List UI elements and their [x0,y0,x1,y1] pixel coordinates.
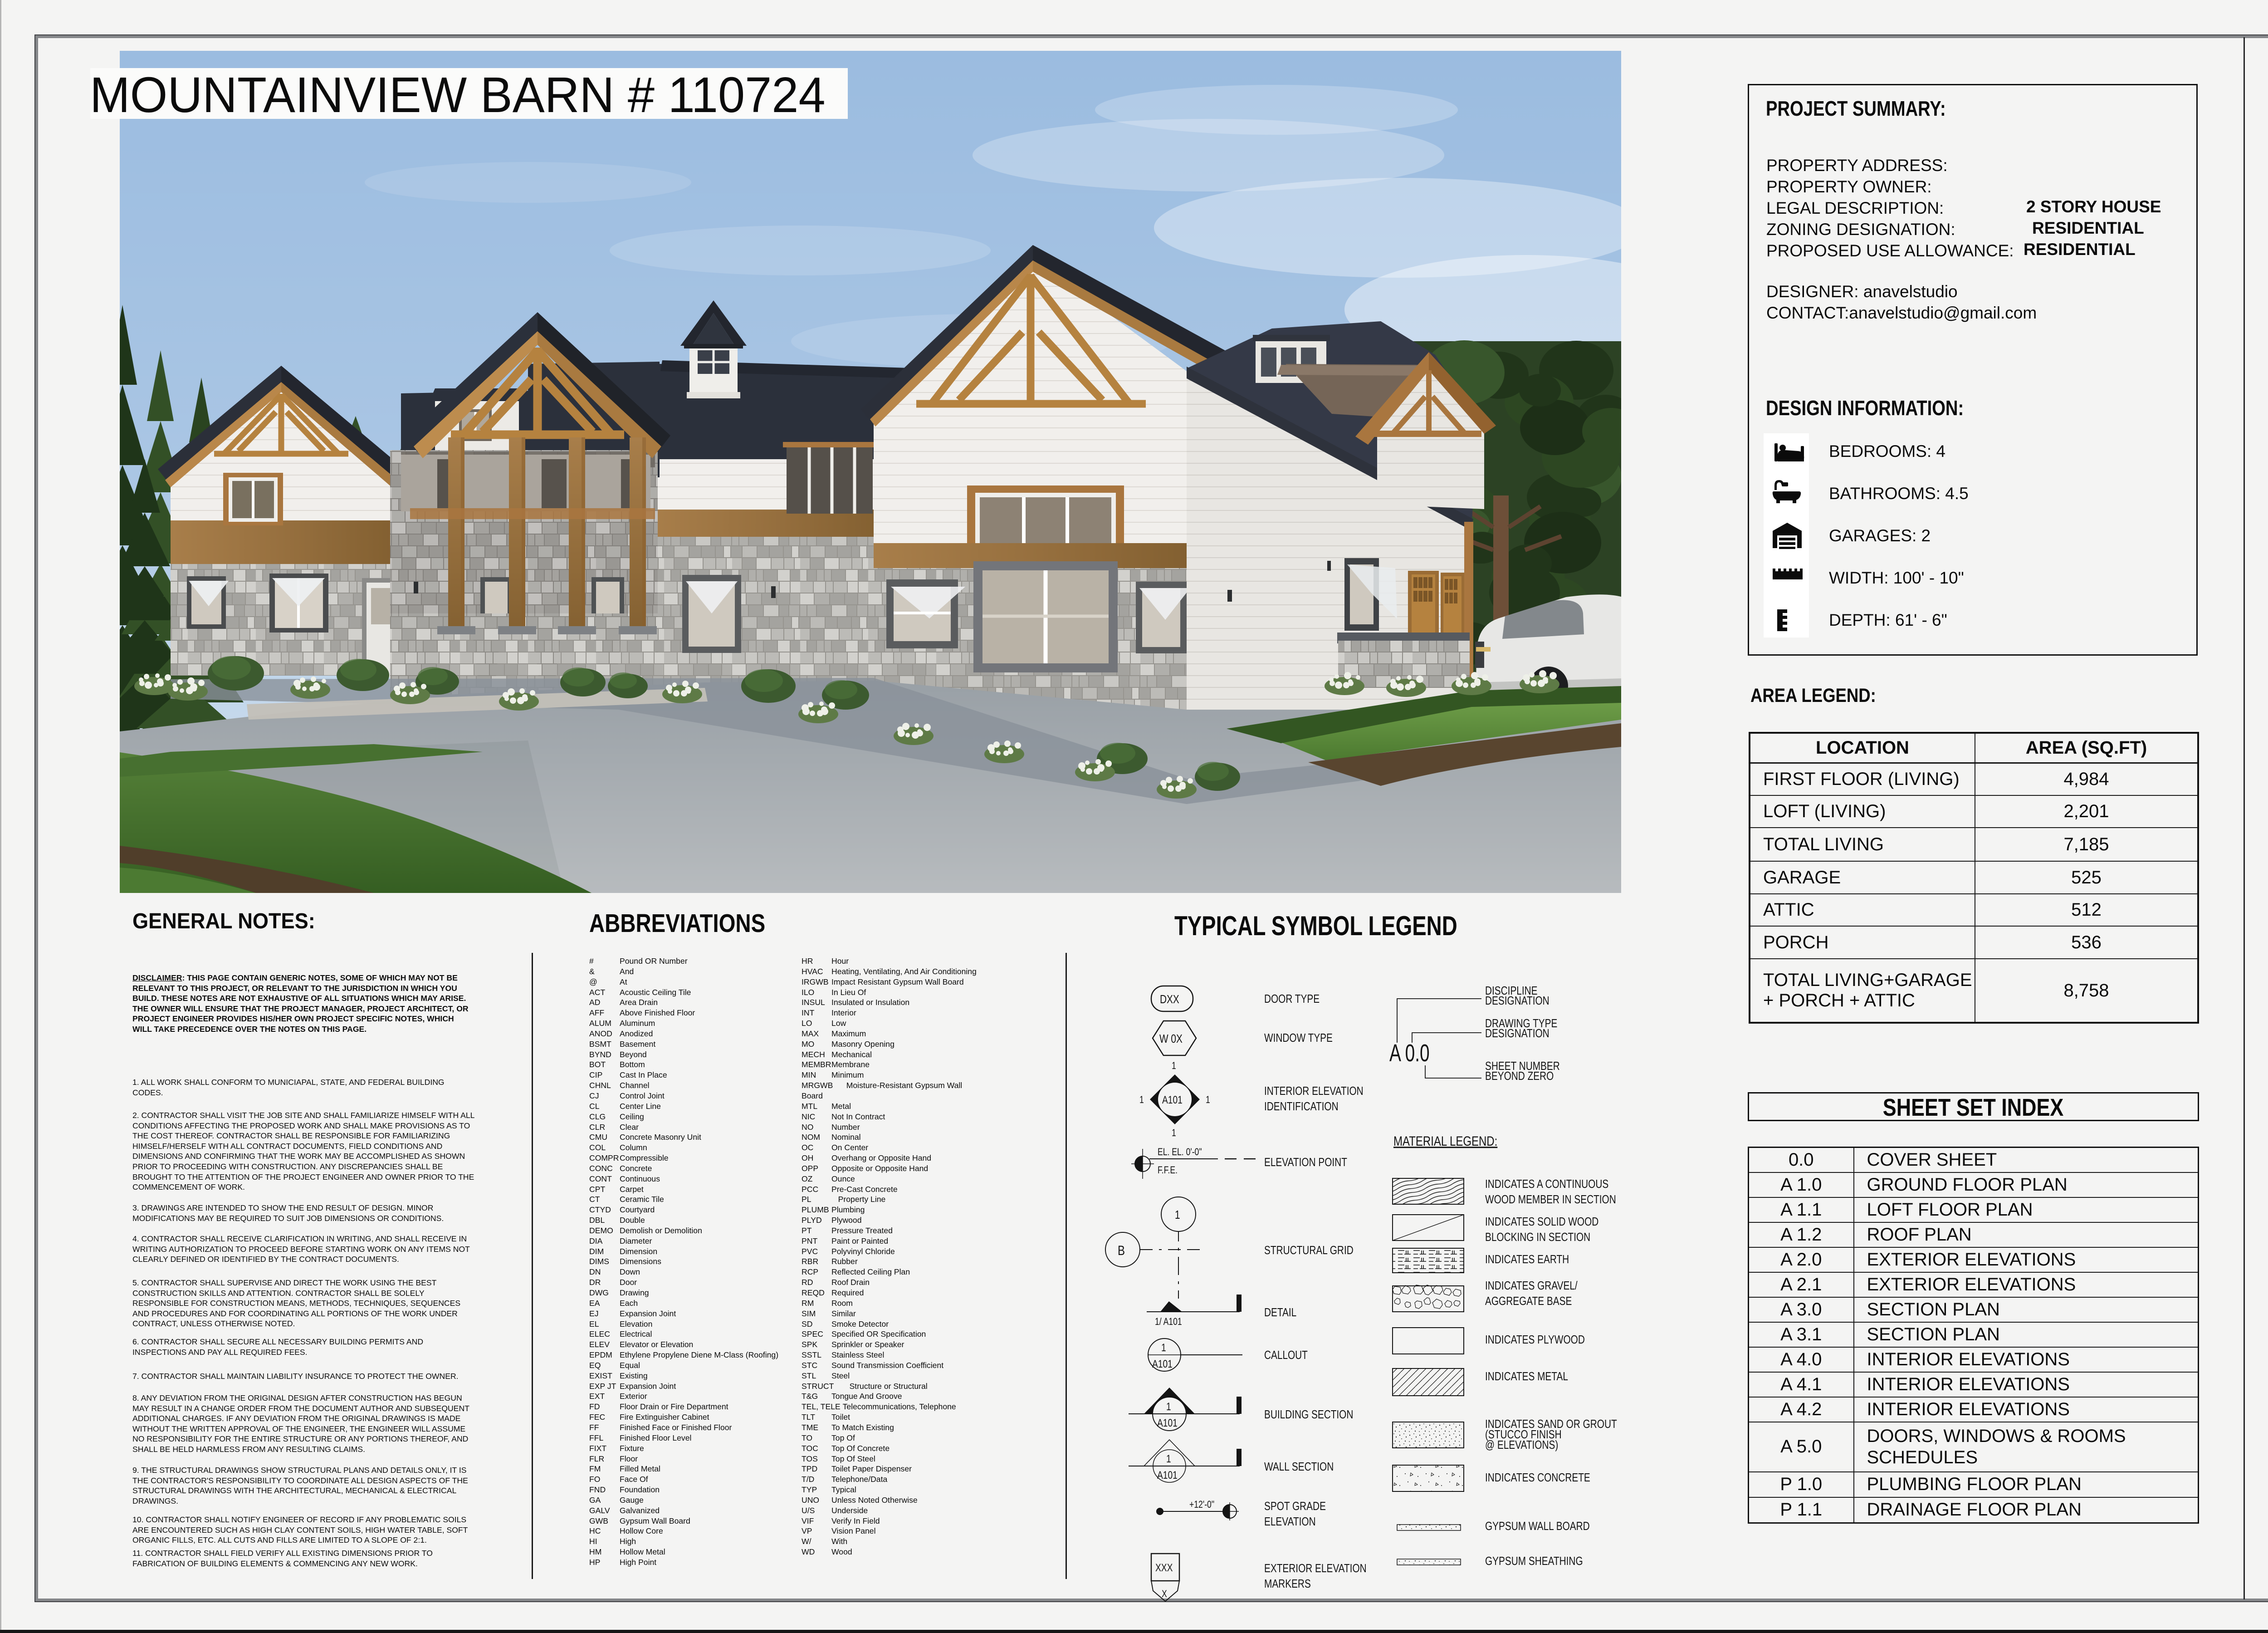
svg-text:1: 1 [1172,1128,1176,1138]
svg-text:1/ A101: 1/ A101 [1155,1316,1182,1327]
svg-text:1: 1 [1175,1208,1180,1221]
svg-text:AGGREGATE BASE: AGGREGATE BASE [1485,1295,1572,1308]
svg-text:F.F.E.: F.F.E. [1158,1165,1178,1176]
svg-text:XXX: XXX [1155,1561,1173,1574]
svg-text:W 0X: W 0X [1159,1032,1183,1045]
svg-text:DOOR TYPE: DOOR TYPE [1264,992,1320,1005]
svg-text:INDICATES METAL: INDICATES METAL [1485,1370,1568,1383]
svg-text:SPOT GRADE: SPOT GRADE [1264,1500,1326,1513]
svg-text:1: 1 [1172,1060,1176,1071]
svg-text:EXTERIOR ELEVATION: EXTERIOR ELEVATION [1264,1562,1367,1575]
svg-text:WOOD MEMBER IN SECTION: WOOD MEMBER IN SECTION [1485,1193,1616,1206]
svg-text:A101: A101 [1162,1094,1183,1106]
svg-text:INTERIOR ELEVATION: INTERIOR ELEVATION [1264,1084,1364,1098]
svg-text:MARKERS: MARKERS [1264,1577,1311,1590]
svg-text:A 0.0: A 0.0 [1389,1039,1430,1067]
svg-text:@ ELEVATIONS): @ ELEVATIONS) [1485,1438,1558,1452]
svg-text:1: 1 [1206,1094,1210,1105]
svg-text:INDICATES GRAVEL/: INDICATES GRAVEL/ [1485,1279,1578,1292]
svg-text:GYPSUM SHEATHING: GYPSUM SHEATHING [1485,1555,1583,1568]
svg-text:INDICATES A CONTINUOUS: INDICATES A CONTINUOUS [1485,1177,1608,1191]
svg-text:INDICATES CONCRETE: INDICATES CONCRETE [1485,1471,1590,1484]
svg-text:1: 1 [1139,1094,1144,1105]
svg-text:STRUCTURAL GRID: STRUCTURAL GRID [1264,1244,1354,1257]
svg-text:B: B [1118,1242,1125,1258]
svg-text:MATERIAL LEGEND:: MATERIAL LEGEND: [1393,1133,1497,1148]
svg-text:ELEVATION: ELEVATION [1264,1515,1316,1528]
svg-text:DETAIL: DETAIL [1264,1306,1296,1319]
svg-text:A101: A101 [1157,1417,1178,1429]
svg-text:EL. EL. 0'-0": EL. EL. 0'-0" [1158,1147,1202,1157]
svg-text:X: X [1162,1589,1167,1599]
svg-text:DXX: DXX [1160,993,1179,1006]
svg-text:BLOCKING IN SECTION: BLOCKING IN SECTION [1485,1231,1590,1244]
svg-text:INDICATES SOLID WOOD: INDICATES SOLID WOOD [1485,1215,1598,1228]
svg-text:ELEVATION POINT: ELEVATION POINT [1264,1156,1347,1169]
svg-text:1: 1 [1161,1341,1166,1354]
svg-text:DESIGNATION: DESIGNATION [1485,1027,1549,1040]
svg-text:1: 1 [1166,1400,1171,1413]
svg-text:WALL SECTION: WALL SECTION [1264,1460,1334,1473]
svg-text:DESIGNATION: DESIGNATION [1485,994,1549,1007]
svg-text:A101: A101 [1157,1469,1178,1481]
svg-text:1: 1 [1166,1452,1171,1465]
svg-text:+12'-0": +12'-0" [1189,1499,1214,1510]
svg-text:WINDOW TYPE: WINDOW TYPE [1264,1031,1333,1045]
svg-text:INDICATES EARTH: INDICATES EARTH [1485,1253,1569,1266]
svg-text:GYPSUM WALL BOARD: GYPSUM WALL BOARD [1485,1520,1590,1533]
svg-text:BUILDING SECTION: BUILDING SECTION [1264,1408,1353,1421]
svg-text:BEYOND ZERO: BEYOND ZERO [1485,1069,1554,1083]
svg-text:CALLOUT: CALLOUT [1264,1349,1308,1362]
svg-text:IDENTIFICATION: IDENTIFICATION [1264,1100,1339,1113]
svg-text:INDICATES PLYWOOD: INDICATES PLYWOOD [1485,1333,1585,1346]
svg-text:A101: A101 [1152,1358,1173,1370]
